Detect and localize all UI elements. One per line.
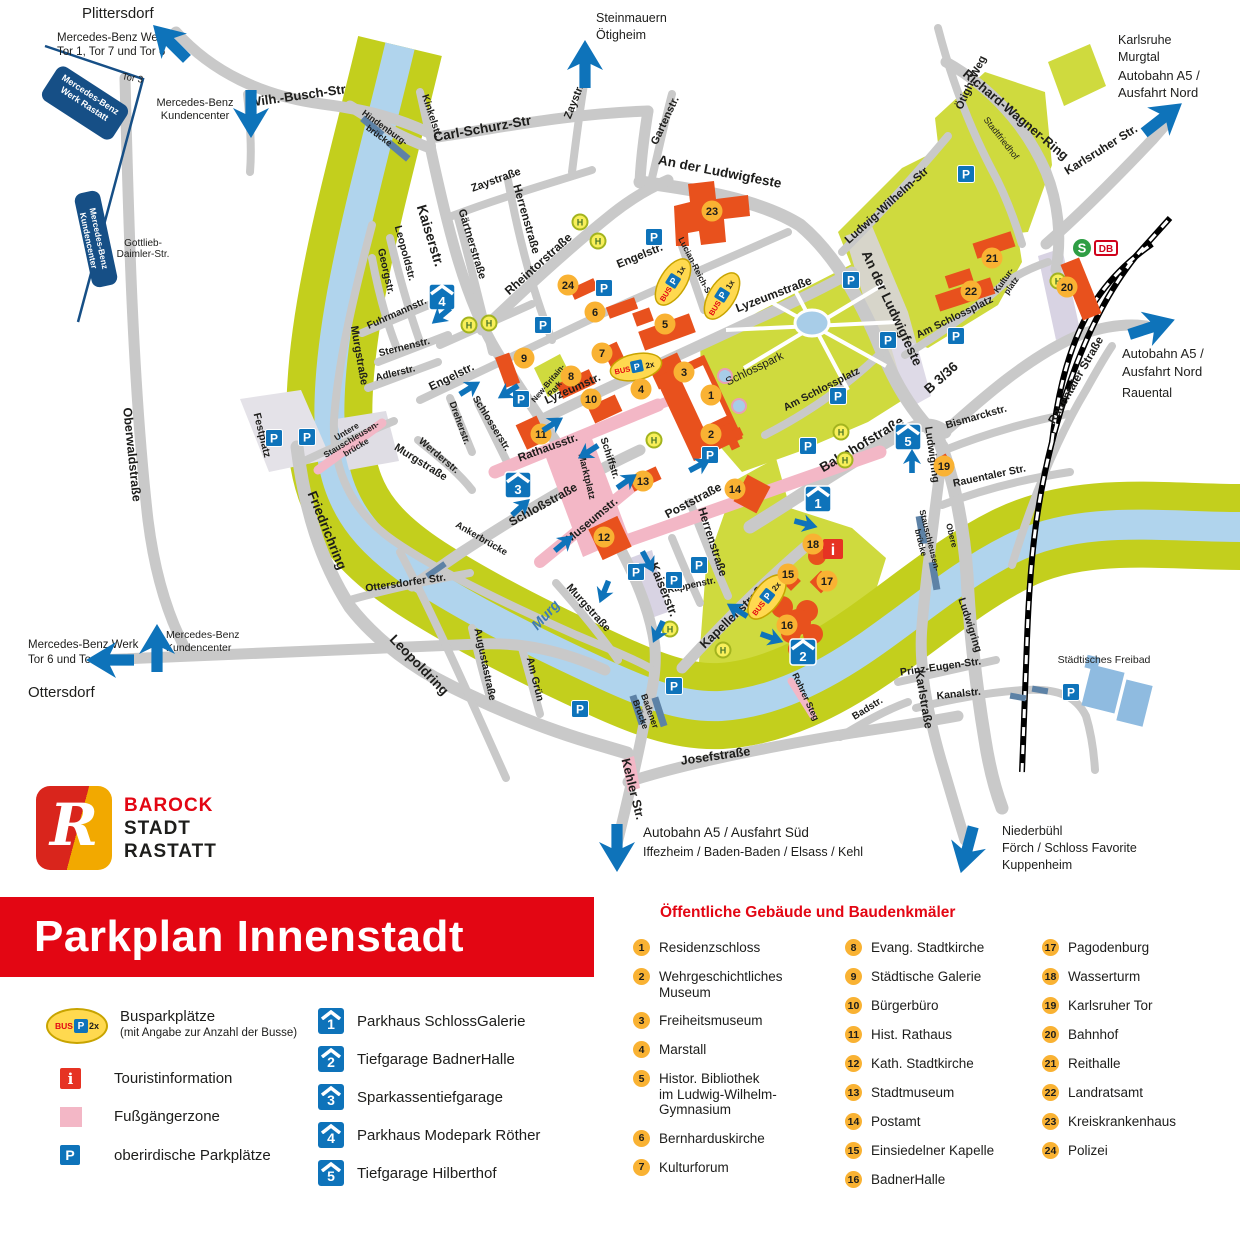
svg-text:P: P <box>632 566 640 580</box>
map-marker-17: 17 <box>817 571 838 592</box>
building-number-badge: 8 <box>845 939 862 956</box>
svg-text:13: 13 <box>637 476 649 488</box>
svg-text:P: P <box>847 274 855 288</box>
title-banner: Parkplan Innenstadt <box>0 897 594 977</box>
legend-tourist-row: i Touristinformation <box>60 1068 232 1089</box>
svg-text:P: P <box>303 431 311 445</box>
destination-arrow-icon <box>599 824 635 872</box>
svg-text:H: H <box>577 218 584 228</box>
svg-text:DB: DB <box>1099 244 1113 255</box>
legend-bus-row: BUSP2x Busparkplätze (mit Angabe zur Anz… <box>46 1008 297 1044</box>
building-legend-item: 3Freiheitsmuseum <box>633 1013 838 1029</box>
destination-label: Iffezheim / Baden-Baden / Elsass / Kehl <box>643 845 863 859</box>
garage-label: Tiefgarage Hilberthof <box>357 1165 497 1182</box>
svg-text:H: H <box>838 428 845 438</box>
building-label: Kreiskrankenhaus <box>1068 1114 1176 1130</box>
surface-parking-icon: P <box>60 1145 80 1165</box>
building-number-badge: 4 <box>633 1041 650 1058</box>
direction-arrow-icon <box>903 449 921 473</box>
svg-text:P: P <box>1067 686 1075 700</box>
building-label: BadnerHalle <box>871 1172 945 1188</box>
svg-text:16: 16 <box>781 620 793 632</box>
building-label: Kath. Stadtkirche <box>871 1056 974 1072</box>
svg-text:i: i <box>831 542 835 559</box>
garage-legend-item: 3Sparkassentiefgarage <box>318 1084 578 1110</box>
parking-icon: P <box>843 272 860 289</box>
svg-text:P: P <box>884 334 892 348</box>
building-label: Postamt <box>871 1114 921 1130</box>
svg-text:7: 7 <box>599 348 605 360</box>
svg-text:5: 5 <box>662 319 668 331</box>
map-marker-13: 13 <box>633 471 654 492</box>
garage-marker-3: 3 <box>505 472 531 498</box>
building-legend-item: 9Städtische Galerie <box>845 969 1037 985</box>
map-marker-18: 18 <box>803 534 824 555</box>
bus-stop-icon: H <box>716 643 731 658</box>
street-label: Städtisches Freibad <box>1058 654 1151 666</box>
building-label: Kulturforum <box>659 1160 729 1176</box>
street-label: B 3/36 <box>921 358 961 396</box>
direction-arrow-icon <box>591 578 617 607</box>
building-label: Stadtmuseum <box>871 1085 954 1101</box>
mercedes-box: Mercedes-BenzWerk Rastatt <box>39 63 131 142</box>
parking-icon: P <box>830 388 847 405</box>
bus-stop-icon: H <box>482 316 497 331</box>
svg-text:22: 22 <box>965 286 977 298</box>
garage-label: Sparkassentiefgarage <box>357 1089 503 1106</box>
destination-label: SteinmauernÖtigheim <box>596 11 667 42</box>
map-marker-24: 24 <box>558 275 579 296</box>
garage-legend-item: 1Parkhaus SchlossGalerie <box>318 1008 578 1034</box>
building-legend-item: 16BadnerHalle <box>845 1172 1037 1188</box>
svg-text:21: 21 <box>986 253 998 265</box>
svg-text:H: H <box>651 436 658 446</box>
building-legend-item: 10Bürgerbüro <box>845 998 1037 1014</box>
svg-text:H: H <box>486 319 493 329</box>
svg-text:14: 14 <box>729 484 742 496</box>
garage-legend-item: 4Parkhaus Modepark Röther <box>318 1122 578 1148</box>
svg-text:P: P <box>834 390 842 404</box>
map-marker-4: 4 <box>631 379 652 400</box>
parking-icon: P <box>596 280 613 297</box>
svg-text:H: H <box>466 321 473 331</box>
svg-text:P: P <box>576 703 584 717</box>
svg-text:P: P <box>517 393 525 407</box>
legend-pedestrian-label: Fußgängerzone <box>114 1108 220 1125</box>
garage-icon: 2 <box>318 1046 344 1072</box>
map-marker-9: 9 <box>514 348 535 369</box>
garage-legend-item: 2Tiefgarage BadnerHalle <box>318 1046 578 1072</box>
bus-stop-icon: H <box>573 215 588 230</box>
svg-text:1: 1 <box>814 496 821 511</box>
garage-marker-4: 4 <box>429 284 455 310</box>
building-number-badge: 20 <box>1042 1026 1059 1043</box>
building-number-badge: 14 <box>845 1113 862 1130</box>
bus-stop-icon: H <box>647 433 662 448</box>
street-label: Dreherstr. <box>447 400 473 446</box>
building-legend-item: 24Polizei <box>1042 1143 1237 1159</box>
building-label: WehrgeschichtlichesMuseum <box>659 969 783 1000</box>
parking-icon: P <box>572 701 589 718</box>
destination-label: KarlsruheMurgtal <box>1118 33 1172 64</box>
svg-text:20: 20 <box>1061 282 1073 294</box>
building-label: Landratsamt <box>1068 1085 1143 1101</box>
building-number-badge: 24 <box>1042 1142 1059 1159</box>
building-label: Histor. Bibliothekim Ludwig-Wilhelm-Gymn… <box>659 1071 777 1118</box>
svg-text:P: P <box>804 440 812 454</box>
map-marker-20: 20 <box>1057 277 1078 298</box>
destination-arrow-icon <box>943 822 990 878</box>
parking-icon: P <box>266 430 283 447</box>
destination-label: NiederbühlFörch / Schloss FavoriteKuppen… <box>1002 824 1137 872</box>
parking-icon: P <box>948 328 965 345</box>
map-marker-10: 10 <box>581 389 602 410</box>
svg-text:3: 3 <box>681 367 687 379</box>
building-legend-item: 23Kreiskrankenhaus <box>1042 1114 1237 1130</box>
city-map: Mercedes-BenzWerk RastattMercedes-BenzKu… <box>0 0 1240 895</box>
building-legend-item: 22Landratsamt <box>1042 1085 1237 1101</box>
garage-label: Tiefgarage BadnerHalle <box>357 1051 515 1068</box>
page-title: Parkplan Innenstadt <box>34 912 464 962</box>
garage-icon: 1 <box>318 1008 344 1034</box>
street-label: Gottlieb-Daimler-Str. <box>117 238 170 260</box>
map-marker-16: 16 <box>777 615 798 636</box>
svg-text:P: P <box>670 574 678 588</box>
garage-icon: 4 <box>318 1122 344 1148</box>
legend-parking-row: P oberirdische Parkplätze <box>60 1145 271 1165</box>
building-number-badge: 9 <box>845 968 862 985</box>
logo-crest-icon: R <box>36 786 112 870</box>
svg-text:H: H <box>842 456 849 466</box>
parking-icon: P <box>880 332 897 349</box>
svg-text:P: P <box>670 680 678 694</box>
building-label: Evang. Stadtkirche <box>871 940 984 956</box>
legend-bus-sublabel: (mit Angabe zur Anzahl der Busse) <box>120 1027 297 1039</box>
building-number-badge: 6 <box>633 1130 650 1147</box>
street-label: Schlosserstr. <box>470 394 513 453</box>
parking-icon: P <box>666 678 683 695</box>
building-label: Marstall <box>659 1042 706 1058</box>
svg-text:8: 8 <box>568 371 574 383</box>
destination-label: Plittersdorf <box>82 5 155 22</box>
buildings-column-1: 1Residenzschloss2WehrgeschichtlichesMuse… <box>633 940 838 1176</box>
building-legend-item: 18Wasserturm <box>1042 969 1237 985</box>
city-logo: R BAROCK STADT RASTATT <box>36 786 296 872</box>
garage-label: Parkhaus SchlossGalerie <box>357 1013 525 1030</box>
map-marker-15: 15 <box>778 564 799 585</box>
building-legend-item: 14Postamt <box>845 1114 1037 1130</box>
logo-line-2: STADT <box>124 819 217 839</box>
mercedes-box: Mercedes-BenzKundencenter <box>73 189 118 288</box>
logo-line-1: BAROCK <box>124 796 217 816</box>
building-number-badge: 15 <box>845 1142 862 1159</box>
building-label: Bernharduskirche <box>659 1131 765 1147</box>
parking-icon: P <box>691 557 708 574</box>
parking-icon: P <box>958 166 975 183</box>
destination-label: Rauental <box>1122 386 1172 400</box>
building-legend-item: 8Evang. Stadtkirche <box>845 940 1037 956</box>
building-label: Reithalle <box>1068 1056 1121 1072</box>
map-marker-1: 1 <box>701 385 722 406</box>
parking-icon: P <box>628 564 645 581</box>
building-label: Residenzschloss <box>659 940 760 956</box>
garage-legend: 1Parkhaus SchlossGalerie 2Tiefgarage Bad… <box>318 1008 578 1186</box>
destination-label: Mercedes-Benz WerkTor 1, Tor 7 und Tor 6 <box>57 32 168 58</box>
map-marker-19: 19 <box>934 456 955 477</box>
parking-icon: P <box>535 317 552 334</box>
building-label: Karlsruher Tor <box>1068 998 1153 1014</box>
parking-icon: P <box>646 229 663 246</box>
legend-tourist-label: Touristinformation <box>114 1070 232 1087</box>
tourist-info-icon: i <box>60 1068 81 1089</box>
building-number-badge: 19 <box>1042 997 1059 1014</box>
building-legend-item: 2WehrgeschichtlichesMuseum <box>633 969 838 1000</box>
destination-label: Mercedes-BenzKundencenter <box>156 97 233 122</box>
building-legend-item: 15Einsiedelner Kapelle <box>845 1143 1037 1159</box>
svg-text:9: 9 <box>521 353 527 365</box>
building-number-badge: 2 <box>633 968 650 985</box>
map-marker-7: 7 <box>592 343 613 364</box>
building-label: Freiheitsmuseum <box>659 1013 763 1029</box>
bus-stop-icon: H <box>838 453 853 468</box>
building-legend-item: 4Marstall <box>633 1042 838 1058</box>
svg-text:2: 2 <box>799 649 806 664</box>
svg-text:18: 18 <box>807 539 819 551</box>
building-legend-item: 7Kulturforum <box>633 1160 838 1176</box>
building-label: Städtische Galerie <box>871 969 981 985</box>
buildings-title: Öffentliche Gebäude und Baudenkmäler <box>660 904 955 922</box>
svg-text:S: S <box>1078 241 1087 256</box>
garage-legend-item: 5Tiefgarage Hilberthof <box>318 1160 578 1186</box>
building-number-badge: 5 <box>633 1070 650 1087</box>
svg-text:23: 23 <box>706 206 718 218</box>
svg-text:4: 4 <box>638 384 645 396</box>
building-number-badge: 10 <box>845 997 862 1014</box>
svg-text:17: 17 <box>821 576 833 588</box>
building-legend-item: 1Residenzschloss <box>633 940 838 956</box>
svg-text:5: 5 <box>904 434 911 449</box>
map-marker-3: 3 <box>674 362 695 383</box>
map-marker-14: 14 <box>725 479 746 500</box>
buildings-column-3: 17Pagodenburg18Wasserturm19Karlsruher To… <box>1042 940 1237 1159</box>
building-number-badge: 3 <box>633 1012 650 1029</box>
building-legend-item: 11Hist. Rathaus <box>845 1027 1037 1043</box>
svg-text:P: P <box>962 168 970 182</box>
building-number-badge: 7 <box>633 1159 650 1176</box>
map-marker-2: 2 <box>701 424 722 445</box>
destination-label: Autobahn A5 /Ausfahrt Nord <box>1122 346 1204 379</box>
building-legend-item: 5Histor. Bibliothekim Ludwig-Wilhelm-Gym… <box>633 1071 838 1118</box>
parking-icon: P <box>1063 684 1080 701</box>
garage-marker-2: 2 <box>790 639 816 665</box>
destination-label: Ottersdorf <box>28 684 96 701</box>
building-label: Hist. Rathaus <box>871 1027 952 1043</box>
map-marker-5: 5 <box>655 314 676 335</box>
svg-text:2: 2 <box>708 429 714 441</box>
svg-text:H: H <box>667 625 674 635</box>
svg-text:15: 15 <box>782 569 794 581</box>
svg-text:19: 19 <box>938 461 950 473</box>
svg-text:10: 10 <box>585 394 597 406</box>
building-label: Bahnhof <box>1068 1027 1118 1043</box>
destination-label: Autobahn A5 / Ausfahrt Süd <box>643 825 809 840</box>
svg-text:24: 24 <box>562 280 575 292</box>
building-label: Bürgerbüro <box>871 998 939 1014</box>
building-number-badge: 12 <box>845 1055 862 1072</box>
garage-icon: 5 <box>318 1160 344 1186</box>
building-number-badge: 22 <box>1042 1084 1059 1101</box>
destination-label: Mercedes-BenzKundencenter <box>166 629 240 654</box>
svg-text:6: 6 <box>592 307 598 319</box>
building-number-badge: 17 <box>1042 939 1059 956</box>
svg-text:P: P <box>539 319 547 333</box>
legend-bus-label: Busparkplätze <box>120 1008 297 1025</box>
garage-icon: 3 <box>318 1084 344 1110</box>
building-legend-item: 6Bernharduskirche <box>633 1131 838 1147</box>
building-number-badge: 13 <box>845 1084 862 1101</box>
destination-label: Autobahn A5 /Ausfahrt Nord <box>1118 68 1200 100</box>
legend-pedestrian-row: Fußgängerzone <box>60 1107 220 1127</box>
svg-text:1: 1 <box>708 390 714 402</box>
building-number-badge: 11 <box>845 1026 862 1043</box>
parking-icon: P <box>299 429 316 446</box>
svg-text:P: P <box>650 231 658 245</box>
svg-text:P: P <box>695 559 703 573</box>
legend-parking-label: oberirdische Parkplätze <box>114 1147 271 1164</box>
pedestrian-zone-swatch <box>60 1107 82 1127</box>
building-number-badge: 23 <box>1042 1113 1059 1130</box>
tourist-info-icon: i <box>823 539 843 559</box>
building-legend-item: 19Karlsruher Tor <box>1042 998 1237 1014</box>
building-number-badge: 16 <box>845 1171 862 1188</box>
building-label: Polizei <box>1068 1143 1108 1159</box>
bus-stop-icon: H <box>834 425 849 440</box>
parking-icon: P <box>800 438 817 455</box>
map-marker-12: 12 <box>594 527 615 548</box>
building-legend-item: 12Kath. Stadtkirche <box>845 1056 1037 1072</box>
sbahn-db-icons: SDB <box>1073 239 1117 257</box>
svg-text:3: 3 <box>514 482 521 497</box>
bus-stop-icon: H <box>591 234 606 249</box>
garage-label: Parkhaus Modepark Röther <box>357 1127 540 1144</box>
map-marker-8: 8 <box>561 366 582 387</box>
destination-arrow-icon <box>567 40 603 88</box>
map-marker-6: 6 <box>585 302 606 323</box>
street-label: Gartenstr. <box>649 95 682 147</box>
building-label: Einsiedelner Kapelle <box>871 1143 994 1159</box>
garage-marker-5: 5 <box>895 424 921 450</box>
svg-text:P: P <box>600 282 608 296</box>
svg-text:P: P <box>270 432 278 446</box>
building-legend-item: 21Reithalle <box>1042 1056 1237 1072</box>
building-number-badge: 18 <box>1042 968 1059 985</box>
svg-text:12: 12 <box>598 532 610 544</box>
parking-icon: P <box>666 572 683 589</box>
building-legend-item: 20Bahnhof <box>1042 1027 1237 1043</box>
parking-icon: P <box>513 391 530 408</box>
bus-stop-icon: H <box>462 318 477 333</box>
svg-text:4: 4 <box>438 294 446 309</box>
map-marker-21: 21 <box>982 248 1003 269</box>
building-label: Pagodenburg <box>1068 940 1149 956</box>
building-label: Wasserturm <box>1068 969 1140 985</box>
building-number-badge: 21 <box>1042 1055 1059 1072</box>
bus-parking-icon: BUSP2x <box>46 1008 108 1044</box>
building-legend-item: 17Pagodenburg <box>1042 940 1237 956</box>
building-legend-item: 13Stadtmuseum <box>845 1085 1037 1101</box>
garage-marker-1: 1 <box>805 486 831 512</box>
building-number-badge: 1 <box>633 939 650 956</box>
svg-text:P: P <box>952 330 960 344</box>
map-marker-22: 22 <box>961 281 982 302</box>
logo-line-3: RASTATT <box>124 842 217 862</box>
svg-text:H: H <box>720 646 727 656</box>
buildings-column-2: 8Evang. Stadtkirche9Städtische Galerie10… <box>845 940 1037 1188</box>
street-label: Carl-Schurz-Str <box>432 112 533 144</box>
svg-text:H: H <box>595 237 602 247</box>
map-marker-23: 23 <box>702 201 723 222</box>
